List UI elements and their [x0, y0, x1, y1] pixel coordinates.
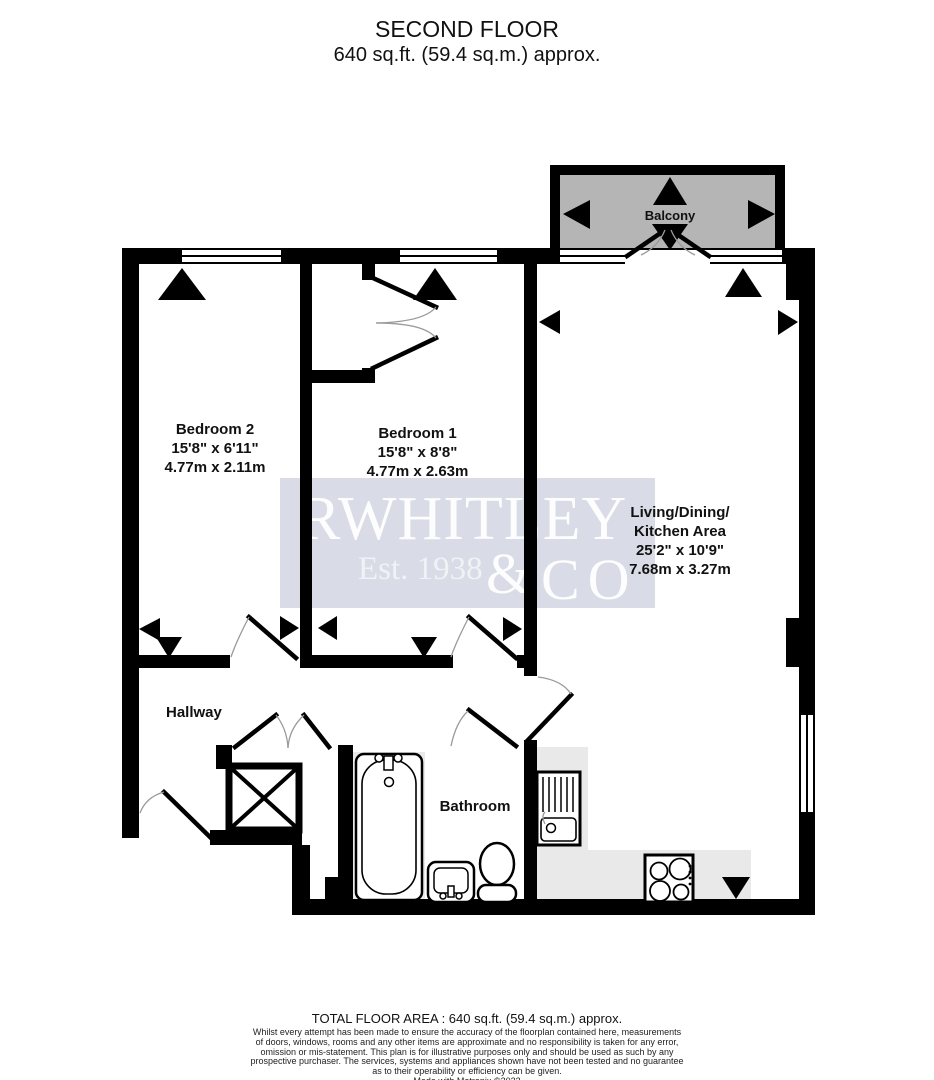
bedroom1-imperial: 15'8" x 8'8"	[330, 443, 505, 462]
kitchen-drain	[547, 824, 556, 833]
toilet-bowl-icon	[480, 843, 514, 885]
hob-burner-3	[650, 881, 670, 901]
hob-burner-4	[674, 885, 689, 900]
basin-tap	[448, 886, 454, 897]
arrow-up-bedroom1-icon	[413, 268, 457, 300]
basin-tap-left	[440, 893, 446, 899]
basin-tap-right	[456, 893, 462, 899]
door-bathroom	[469, 710, 516, 746]
hob-burner-1	[651, 863, 668, 880]
bathtub-mixer	[384, 756, 393, 770]
plan-symbols	[0, 0, 934, 1080]
bedroom1-label: Bedroom 1 15'8" x 8'8" 4.77m x 2.63m	[330, 424, 505, 481]
balcony-label: Balcony	[605, 206, 735, 225]
bathroom-label: Bathroom	[410, 797, 540, 816]
bedroom2-name: Bedroom 2	[120, 420, 310, 439]
hob-burner-2	[670, 859, 691, 880]
bedroom2-label: Bedroom 2 15'8" x 6'11" 4.77m x 2.11m	[120, 420, 310, 477]
arrow-down-kitchen-icon	[722, 877, 750, 899]
door-living	[528, 695, 571, 740]
arrow-right-hall-icon	[503, 617, 522, 641]
floorplan-canvas: SECOND FLOOR 640 sq.ft. (59.4 sq.m.) app…	[0, 0, 934, 1080]
door-closet-right	[304, 715, 329, 747]
footer: TOTAL FLOOR AREA : 640 sq.ft. (59.4 sq.m…	[0, 1010, 934, 1080]
bathtub-drain	[385, 778, 394, 787]
bedroom1-metric: 4.77m x 2.63m	[330, 462, 505, 481]
arrow-up-balcony-icon	[653, 177, 687, 205]
arrow-down-bedroom1-icon	[411, 637, 437, 658]
hallway-label: Hallway	[166, 703, 222, 722]
arrow-right-balcony-icon	[748, 200, 775, 229]
arrow-up-bedroom2-icon	[158, 268, 206, 300]
plan-title: SECOND FLOOR 640 sq.ft. (59.4 sq.m.) app…	[0, 16, 934, 67]
bedroom1-name: Bedroom 1	[330, 424, 505, 443]
arrow-left-divider-icon	[318, 616, 337, 640]
toilet-base	[478, 885, 516, 902]
arrow-left-living-icon	[539, 310, 560, 334]
door-entrance	[164, 792, 211, 838]
door-closet-right-arc	[288, 715, 304, 748]
door-closet-left	[235, 715, 276, 747]
arrow-up-living-icon	[725, 268, 762, 297]
total-floor-area: TOTAL FLOOR AREA : 640 sq.ft. (59.4 sq.m…	[0, 1010, 934, 1028]
living-name-1: Living/Dining/	[600, 503, 760, 522]
door-closet-left-arc	[276, 715, 288, 748]
floor-name: SECOND FLOOR	[0, 16, 934, 43]
bathtub-tap-left	[375, 754, 383, 762]
bedroom2-imperial: 15'8" x 6'11"	[120, 439, 310, 458]
door-entrance-arc	[140, 792, 164, 813]
living-label: Living/Dining/ Kitchen Area 25'2" x 10'9…	[600, 503, 760, 579]
arrow-right-living-icon	[778, 310, 798, 335]
door-wardrobe-bottom-arc	[376, 323, 436, 338]
arrow-right-divider-icon	[280, 616, 299, 640]
living-name-2: Kitchen Area	[600, 522, 760, 541]
floor-area: 640 sq.ft. (59.4 sq.m.) approx.	[0, 43, 934, 67]
door-bedroom2-arc	[231, 617, 249, 657]
bathtub-tap-right	[394, 754, 402, 762]
living-imperial: 25'2" x 10'9"	[600, 541, 760, 560]
door-wardrobe-top-arc	[376, 307, 436, 323]
living-metric: 7.68m x 3.27m	[600, 560, 760, 579]
door-wardrobe-bottom	[373, 338, 436, 368]
door-bedroom1-arc	[451, 617, 469, 657]
door-living-arc	[538, 677, 571, 694]
arrow-left-balcony-icon	[563, 200, 590, 229]
bedroom2-metric: 4.77m x 2.11m	[120, 458, 310, 477]
arrow-down-bedroom2-icon	[156, 637, 182, 658]
door-bathroom-arc	[451, 711, 468, 746]
